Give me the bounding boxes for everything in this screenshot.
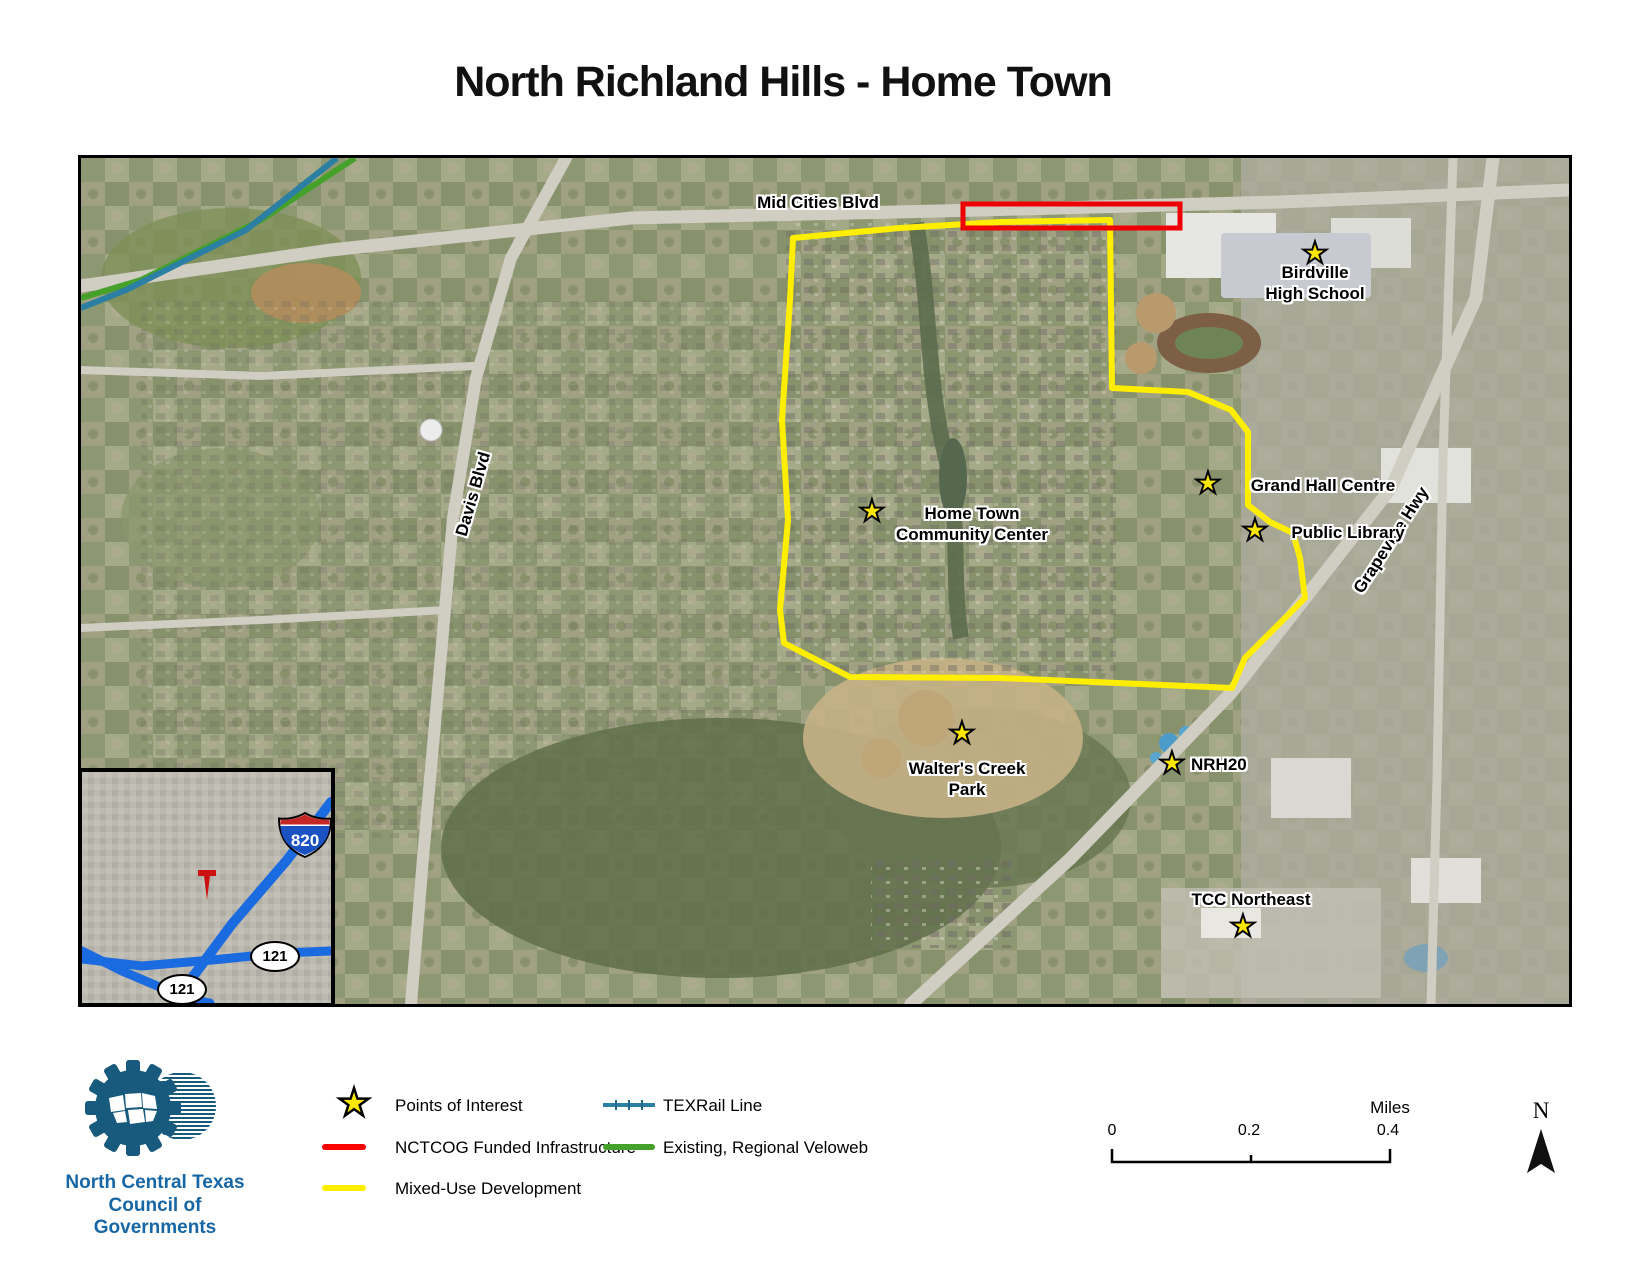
interstate-820-number: 820 — [291, 831, 319, 850]
legend-existing-regional-veloweb: Existing, Regional Veloweb — [663, 1138, 868, 1158]
page-title: North Richland Hills - Home Town — [454, 58, 1112, 107]
poi-label-tcc-northeast: TCC Northeast — [1151, 889, 1351, 910]
nctcog-gear-icon — [85, 1058, 230, 1163]
poi-label-line: Community Center — [872, 524, 1072, 545]
poi-star-icon: ★ — [1195, 469, 1222, 499]
poi-label-line: TCC Northeast — [1151, 889, 1351, 910]
state-121-shield: 121 — [250, 941, 300, 972]
legend-yellow-line-swatch — [322, 1185, 366, 1191]
legend-star-icon: ★ — [337, 1084, 371, 1122]
logo-text-line2: Council of Governments — [45, 1195, 265, 1239]
poi-label-line: Home Town — [872, 503, 1072, 524]
poi-label-grand-hall-centre: Grand Hall Centre — [1223, 475, 1423, 496]
scale-bar-bracket — [1110, 1146, 1392, 1166]
map-report-page: North Richland Hills - Home Town — [0, 0, 1650, 1275]
north-label: N — [1533, 1098, 1550, 1124]
poi-label-line: Grand Hall Centre — [1223, 475, 1423, 496]
logo-text-line1: North Central Texas — [45, 1172, 265, 1194]
poi-label-line: High School — [1215, 283, 1415, 304]
legend-mixed-use-development: Mixed-Use Development — [395, 1179, 581, 1199]
scale-tick-label-0: 0 — [1092, 1122, 1132, 1140]
poi-label-nrh20: NRH20 — [1191, 754, 1247, 775]
north-arrow-icon — [1526, 1128, 1556, 1174]
poi-label-walters-creek-park: Walter's Creek Park — [867, 758, 1067, 800]
poi-label-birdville-high-school: Birdville High School — [1215, 262, 1415, 304]
legend-texrail-line: TEXRail Line — [663, 1096, 762, 1116]
poi-label-home-town-community-center: Home Town Community Center — [872, 503, 1072, 545]
scale-unit-label: Miles — [1340, 1098, 1440, 1118]
legend-points-of-interest: Points of Interest — [395, 1096, 523, 1116]
texrail-swatch-tick — [628, 1100, 630, 1110]
texrail-swatch-tick — [641, 1100, 643, 1110]
scale-tick-label-04: 0.4 — [1358, 1122, 1418, 1140]
legend-nctcog-funded-infrastructure: NCTCOG Funded Infrastructure — [395, 1138, 636, 1158]
poi-label-line: Walter's Creek — [867, 758, 1067, 779]
poi-star-icon: ★ — [1230, 912, 1257, 942]
scale-tick-label-02: 0.2 — [1219, 1122, 1279, 1140]
poi-label-line: NRH20 — [1191, 754, 1247, 775]
state-121-shield: 121 — [157, 974, 207, 1005]
poi-label-line: Birdville — [1215, 262, 1415, 283]
texrail-swatch-tick — [615, 1100, 617, 1110]
legend-red-line-swatch — [322, 1144, 366, 1150]
legend-green-line-swatch — [603, 1144, 655, 1150]
aerial-map: Mid Cities Blvd Davis Blvd Grapevine Hwy… — [78, 155, 1572, 1007]
poi-label-public-library: Public Library — [1248, 522, 1448, 543]
road-label-mid-cities-blvd: Mid Cities Blvd — [718, 192, 918, 213]
inset-locator-map: 820 121 121 — [78, 768, 335, 1007]
poi-star-icon: ★ — [949, 719, 976, 749]
legend-texrail-swatch — [603, 1100, 655, 1110]
inset-graphic — [82, 772, 331, 1003]
poi-label-line: Park — [867, 779, 1067, 800]
poi-label-line: Public Library — [1248, 522, 1448, 543]
poi-star-icon: ★ — [1159, 749, 1186, 779]
interstate-820-shield: 820 — [277, 811, 333, 859]
